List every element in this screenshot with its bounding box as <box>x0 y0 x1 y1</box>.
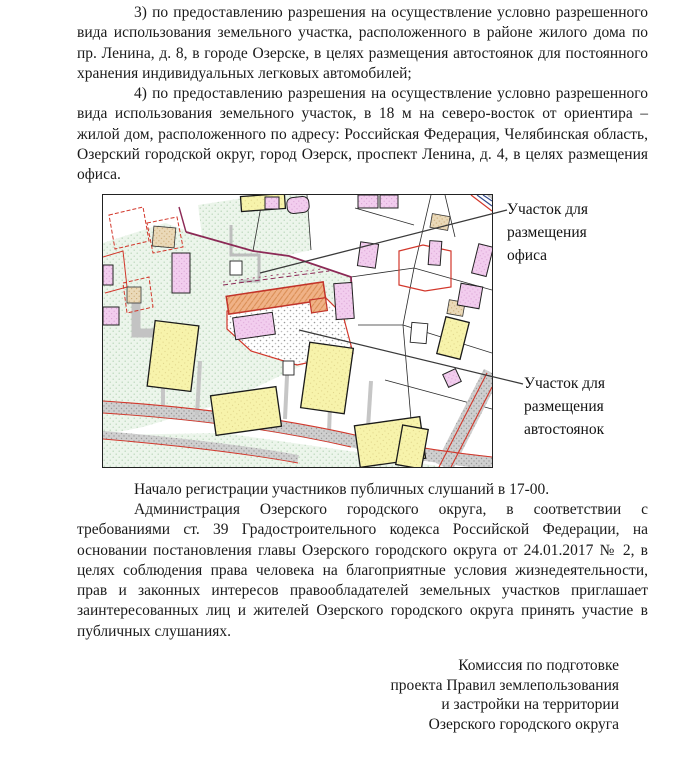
map-svg <box>103 195 492 467</box>
map-figure: Участок для размещения офиса Участок для… <box>0 194 679 468</box>
signature-block: Комиссия по подготовке проекта Правил зе… <box>77 656 648 734</box>
office-plot-label: Участок для размещения офиса <box>507 198 611 267</box>
signature-line-3: и застройки на территории <box>77 695 619 715</box>
administration-paragraph: Администрация Озерского городского округ… <box>77 500 648 642</box>
parking-plot-label: Участок для размещения автостоянок <box>524 372 628 441</box>
registration-line: Начало регистрации участников публичных … <box>77 480 648 500</box>
paragraph-item-3: 3) по предоставлению разрешения на осуще… <box>77 0 648 84</box>
body-text-top: 3) по предоставлению разрешения на осуще… <box>0 0 679 186</box>
paragraph-item-4: 4) по предоставлению разрешения на осуще… <box>77 84 648 185</box>
body-text-bottom: Начало регистрации участников публичных … <box>0 480 679 734</box>
signature-line-2: проекта Правил землепользования <box>77 676 619 696</box>
document-page: 3) по предоставлению разрешения на осуще… <box>0 0 679 771</box>
signature-line-1: Комиссия по подготовке <box>77 656 619 676</box>
signature-line-4: Озерского городского округа <box>77 715 619 735</box>
cadastral-map-image <box>102 194 493 468</box>
